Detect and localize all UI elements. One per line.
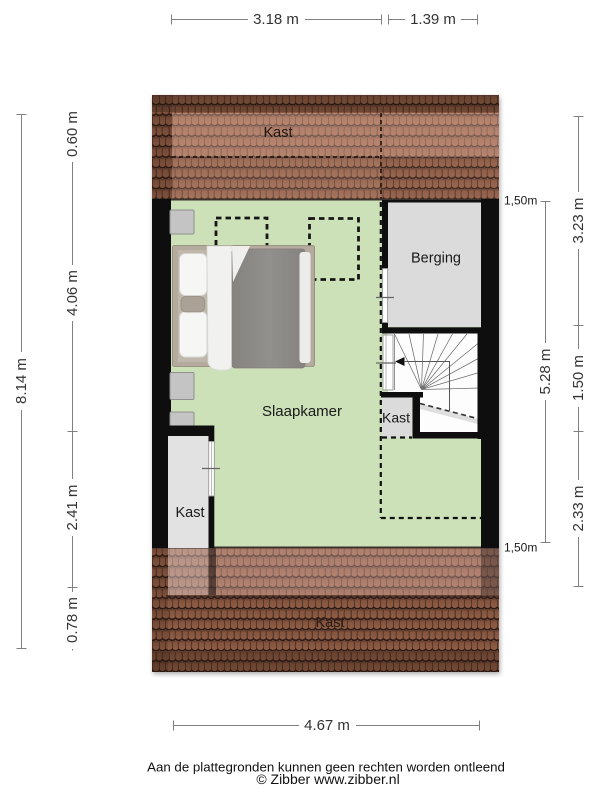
svg-text:4.67 m: 4.67 m <box>304 717 350 734</box>
svg-text:Berging: Berging <box>411 251 461 267</box>
svg-text:1.39 m: 1.39 m <box>410 11 456 28</box>
svg-text:1,50m: 1,50m <box>504 541 537 555</box>
svg-text:0.60 m: 0.60 m <box>64 111 81 157</box>
svg-text:Slaapkamer: Slaapkamer <box>262 403 342 420</box>
svg-text:5.28 m: 5.28 m <box>537 349 554 395</box>
svg-text:3.23 m: 3.23 m <box>570 198 587 244</box>
svg-text:Kast: Kast <box>382 410 410 426</box>
svg-text:Kast: Kast <box>315 615 344 631</box>
svg-text:2.33 m: 2.33 m <box>570 486 587 532</box>
svg-text:4.06 m: 4.06 m <box>64 270 81 316</box>
svg-text:Kast: Kast <box>263 125 292 141</box>
svg-text:8.14 m: 8.14 m <box>13 358 30 404</box>
svg-text:3.18 m: 3.18 m <box>253 11 299 28</box>
svg-text:0.78 m: 0.78 m <box>64 597 81 643</box>
svg-text:1,50m: 1,50m <box>504 194 537 208</box>
svg-text:1.50 m: 1.50 m <box>570 355 587 401</box>
svg-text:© Zibber www.zibber.nl: © Zibber www.zibber.nl <box>256 771 399 787</box>
svg-text:2.41 m: 2.41 m <box>64 485 81 531</box>
svg-text:Kast: Kast <box>175 505 204 521</box>
